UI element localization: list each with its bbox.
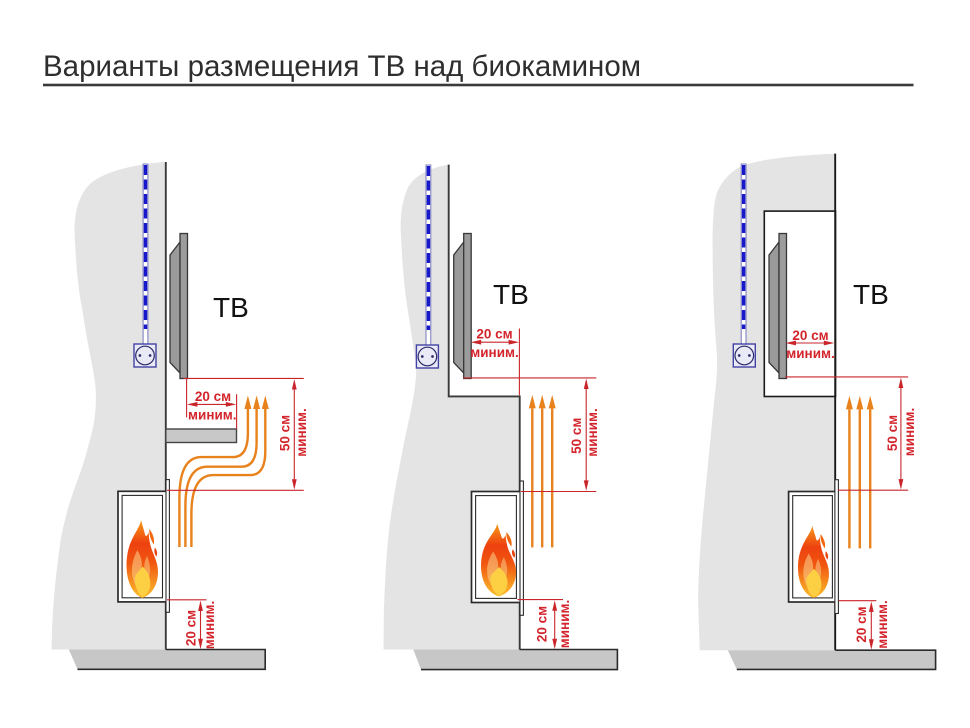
svg-text:Варианты размещения ТВ над био: Варианты размещения ТВ над биокамином xyxy=(43,50,641,83)
svg-text:ТВ: ТВ xyxy=(213,292,249,323)
svg-text:50 см: 50 см xyxy=(569,418,584,454)
svg-text:миним.: миним. xyxy=(585,408,600,456)
svg-text:20 см: 20 см xyxy=(792,328,828,343)
svg-text:20 см: 20 см xyxy=(854,606,869,642)
svg-text:миним.: миним. xyxy=(294,408,309,456)
svg-text:миним.: миним. xyxy=(875,600,890,648)
svg-text:20 см: 20 см xyxy=(476,327,512,342)
svg-text:миним.: миним. xyxy=(470,345,518,360)
svg-text:миним.: миним. xyxy=(188,407,236,422)
svg-text:миним.: миним. xyxy=(202,601,217,649)
svg-text:20 см: 20 см xyxy=(195,389,231,404)
svg-text:ТВ: ТВ xyxy=(853,279,889,310)
svg-text:50 см: 50 см xyxy=(278,415,293,451)
svg-text:миним.: миним. xyxy=(557,600,572,648)
svg-text:20 см: 20 см xyxy=(184,610,199,646)
svg-text:50 см: 50 см xyxy=(885,415,900,451)
svg-text:миним.: миним. xyxy=(786,346,834,361)
svg-text:ТВ: ТВ xyxy=(493,279,529,310)
svg-text:миним.: миним. xyxy=(902,408,917,456)
svg-text:20 см: 20 см xyxy=(534,606,549,642)
